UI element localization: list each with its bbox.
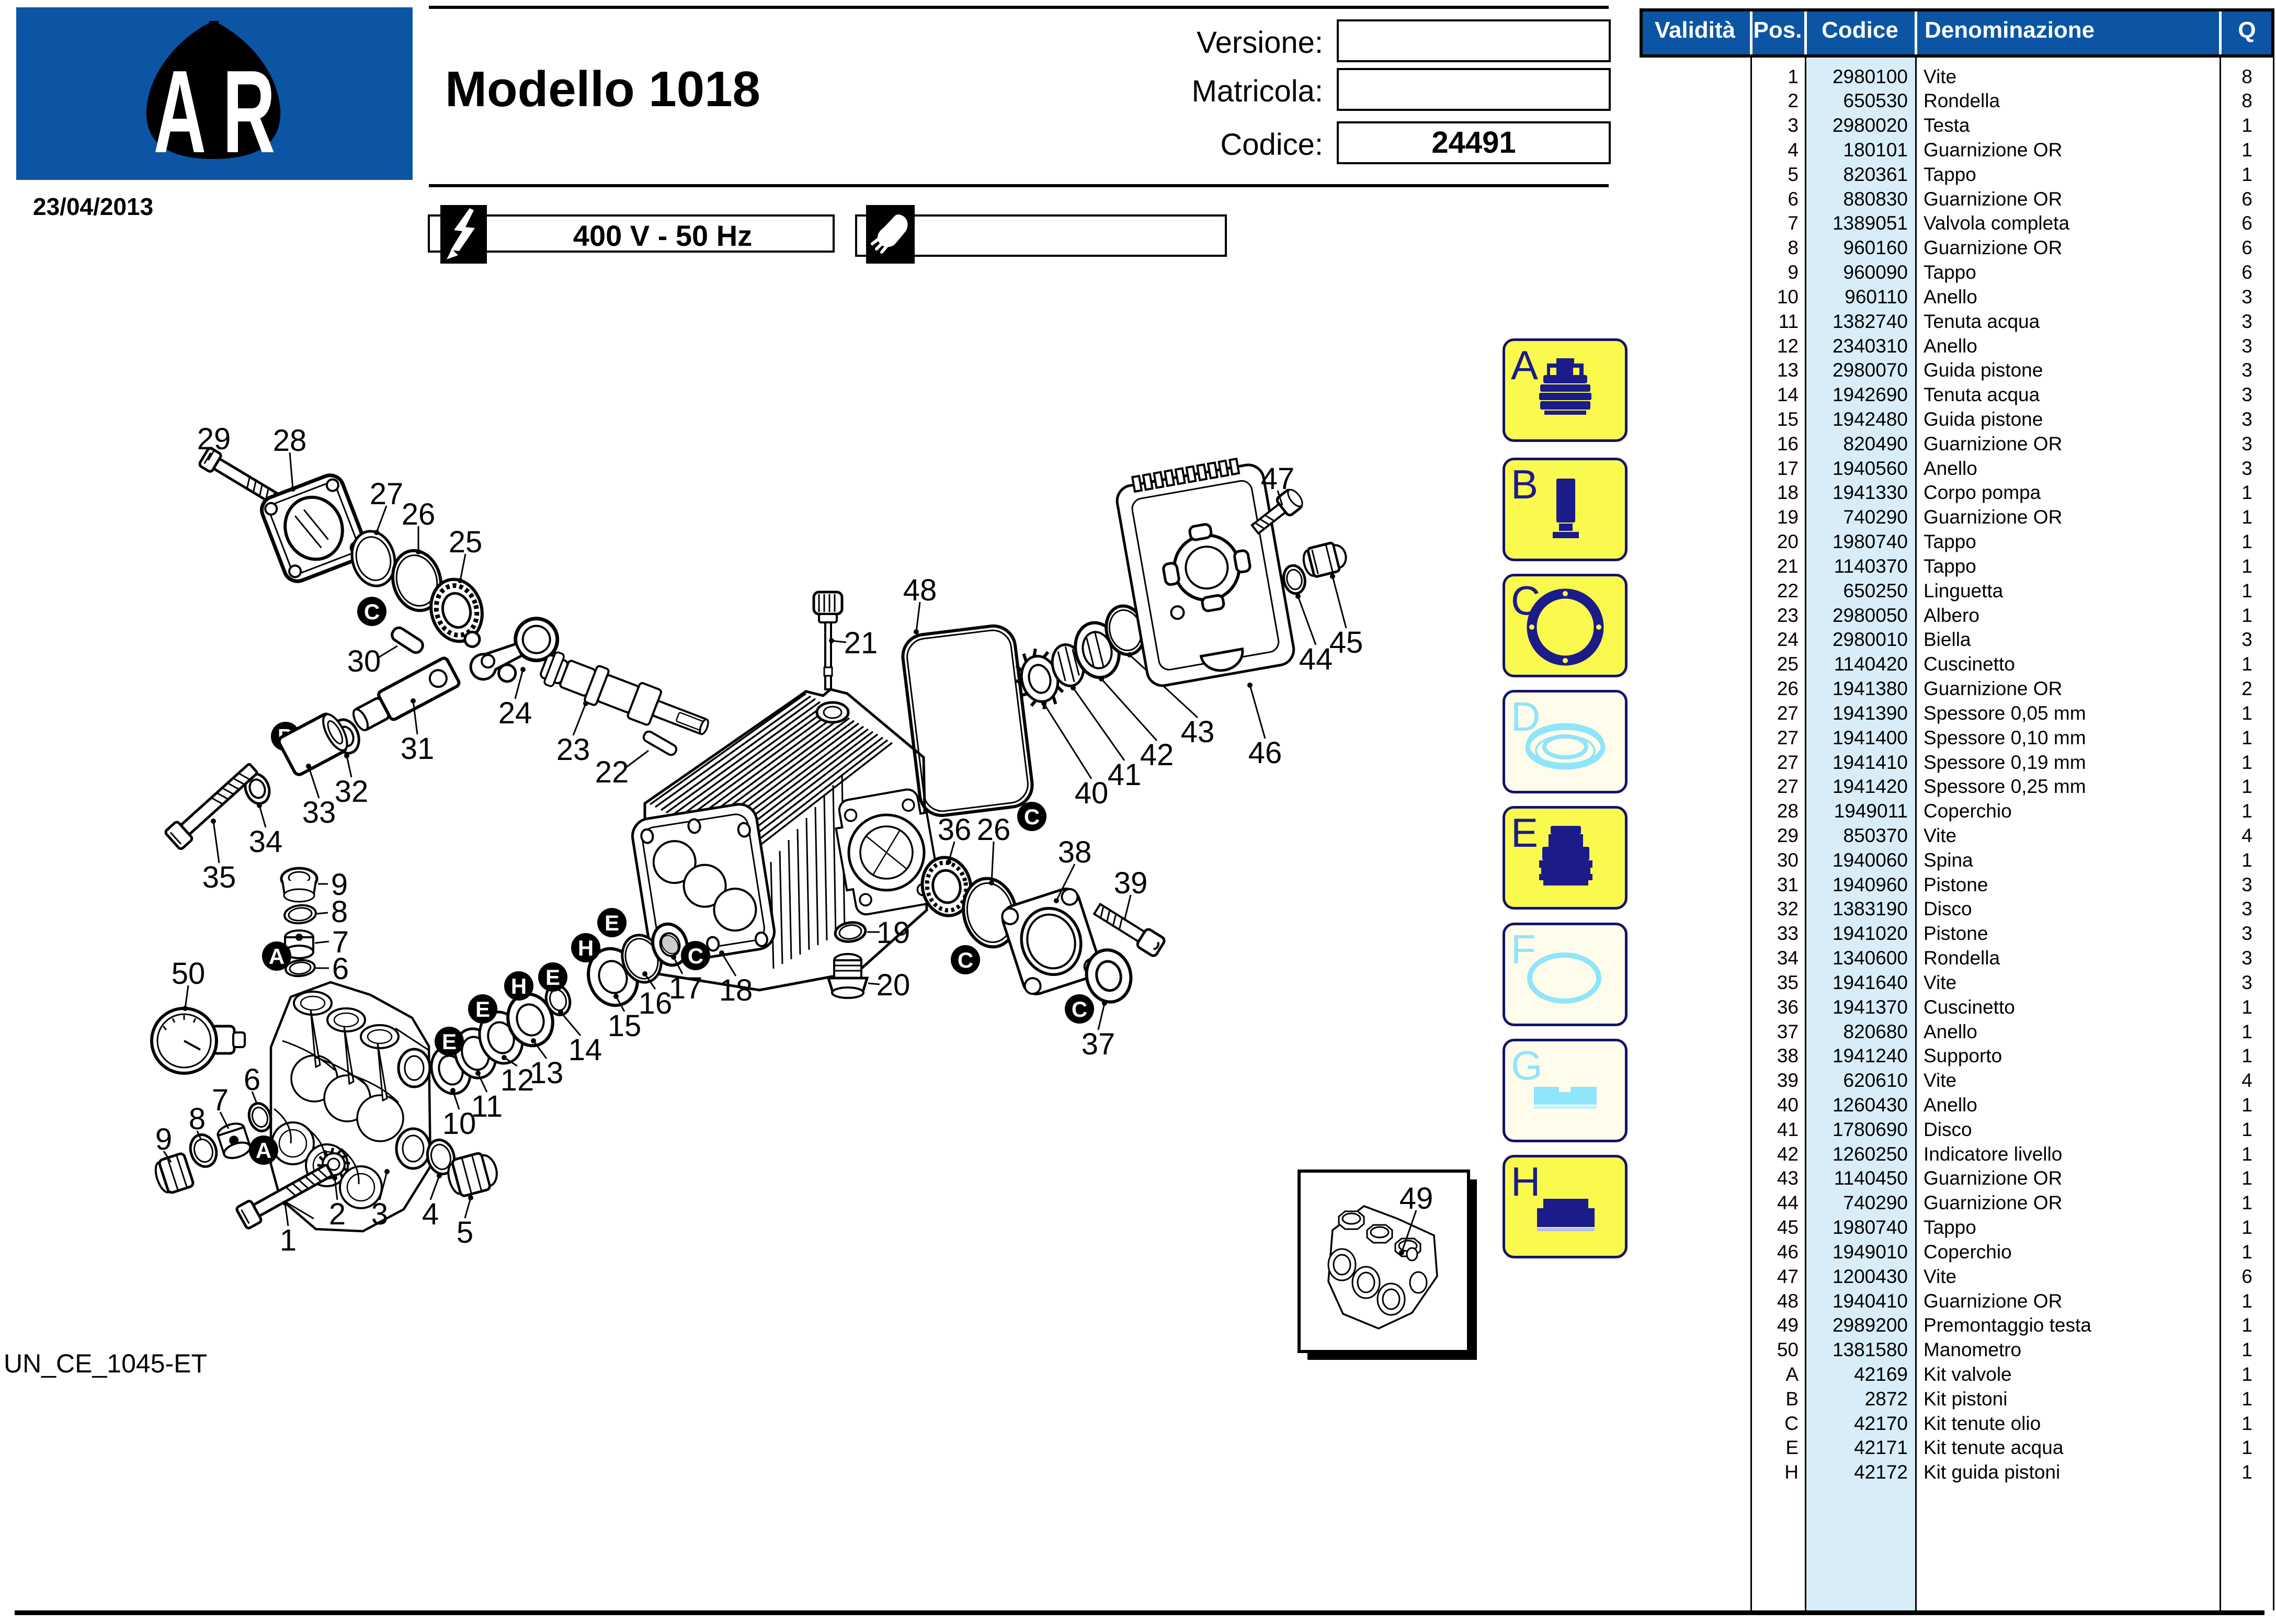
svg-text:13: 13: [530, 1056, 564, 1090]
svg-text:H: H: [511, 974, 527, 998]
svg-text:31: 31: [401, 732, 435, 766]
svg-text:46: 46: [1248, 736, 1282, 770]
svg-text:22: 22: [595, 755, 629, 789]
svg-text:A: A: [269, 944, 284, 969]
svg-text:19: 19: [877, 916, 911, 950]
svg-text:E: E: [442, 1029, 457, 1054]
svg-text:1: 1: [280, 1223, 297, 1257]
svg-text:24: 24: [498, 696, 532, 730]
svg-text:C: C: [1024, 804, 1040, 829]
svg-text:E: E: [545, 965, 560, 990]
svg-text:40: 40: [1075, 776, 1109, 810]
svg-text:44: 44: [1299, 642, 1333, 676]
svg-text:2: 2: [329, 1197, 346, 1231]
svg-text:35: 35: [202, 860, 236, 894]
svg-text:43: 43: [1181, 715, 1215, 749]
svg-text:4: 4: [422, 1197, 439, 1231]
svg-text:15: 15: [608, 1009, 642, 1043]
svg-text:E: E: [475, 997, 490, 1021]
svg-text:32: 32: [335, 775, 369, 809]
svg-text:E: E: [605, 911, 619, 935]
svg-text:C: C: [364, 599, 380, 624]
svg-text:42: 42: [1140, 738, 1174, 772]
svg-text:18: 18: [719, 973, 753, 1007]
svg-text:37: 37: [1082, 1027, 1116, 1061]
svg-text:11: 11: [471, 1089, 503, 1123]
svg-text:C: C: [958, 948, 973, 972]
svg-text:41: 41: [1108, 758, 1142, 792]
svg-text:C: C: [1072, 997, 1087, 1021]
svg-text:23: 23: [556, 733, 590, 767]
svg-text:34: 34: [249, 825, 283, 859]
svg-text:8: 8: [331, 895, 348, 929]
svg-text:33: 33: [302, 796, 336, 830]
svg-text:C: C: [688, 944, 703, 968]
svg-text:21: 21: [844, 626, 878, 660]
svg-text:45: 45: [1329, 626, 1363, 660]
svg-text:20: 20: [877, 968, 911, 1002]
svg-text:A: A: [256, 1138, 271, 1163]
svg-text:12: 12: [500, 1063, 534, 1097]
svg-text:H: H: [578, 936, 594, 960]
svg-text:6: 6: [332, 952, 349, 986]
svg-text:14: 14: [568, 1033, 602, 1067]
svg-text:5: 5: [457, 1216, 473, 1250]
svg-text:16: 16: [639, 986, 673, 1020]
svg-text:30: 30: [347, 644, 381, 678]
svg-text:3: 3: [371, 1197, 388, 1231]
svg-text:17: 17: [669, 971, 703, 1005]
